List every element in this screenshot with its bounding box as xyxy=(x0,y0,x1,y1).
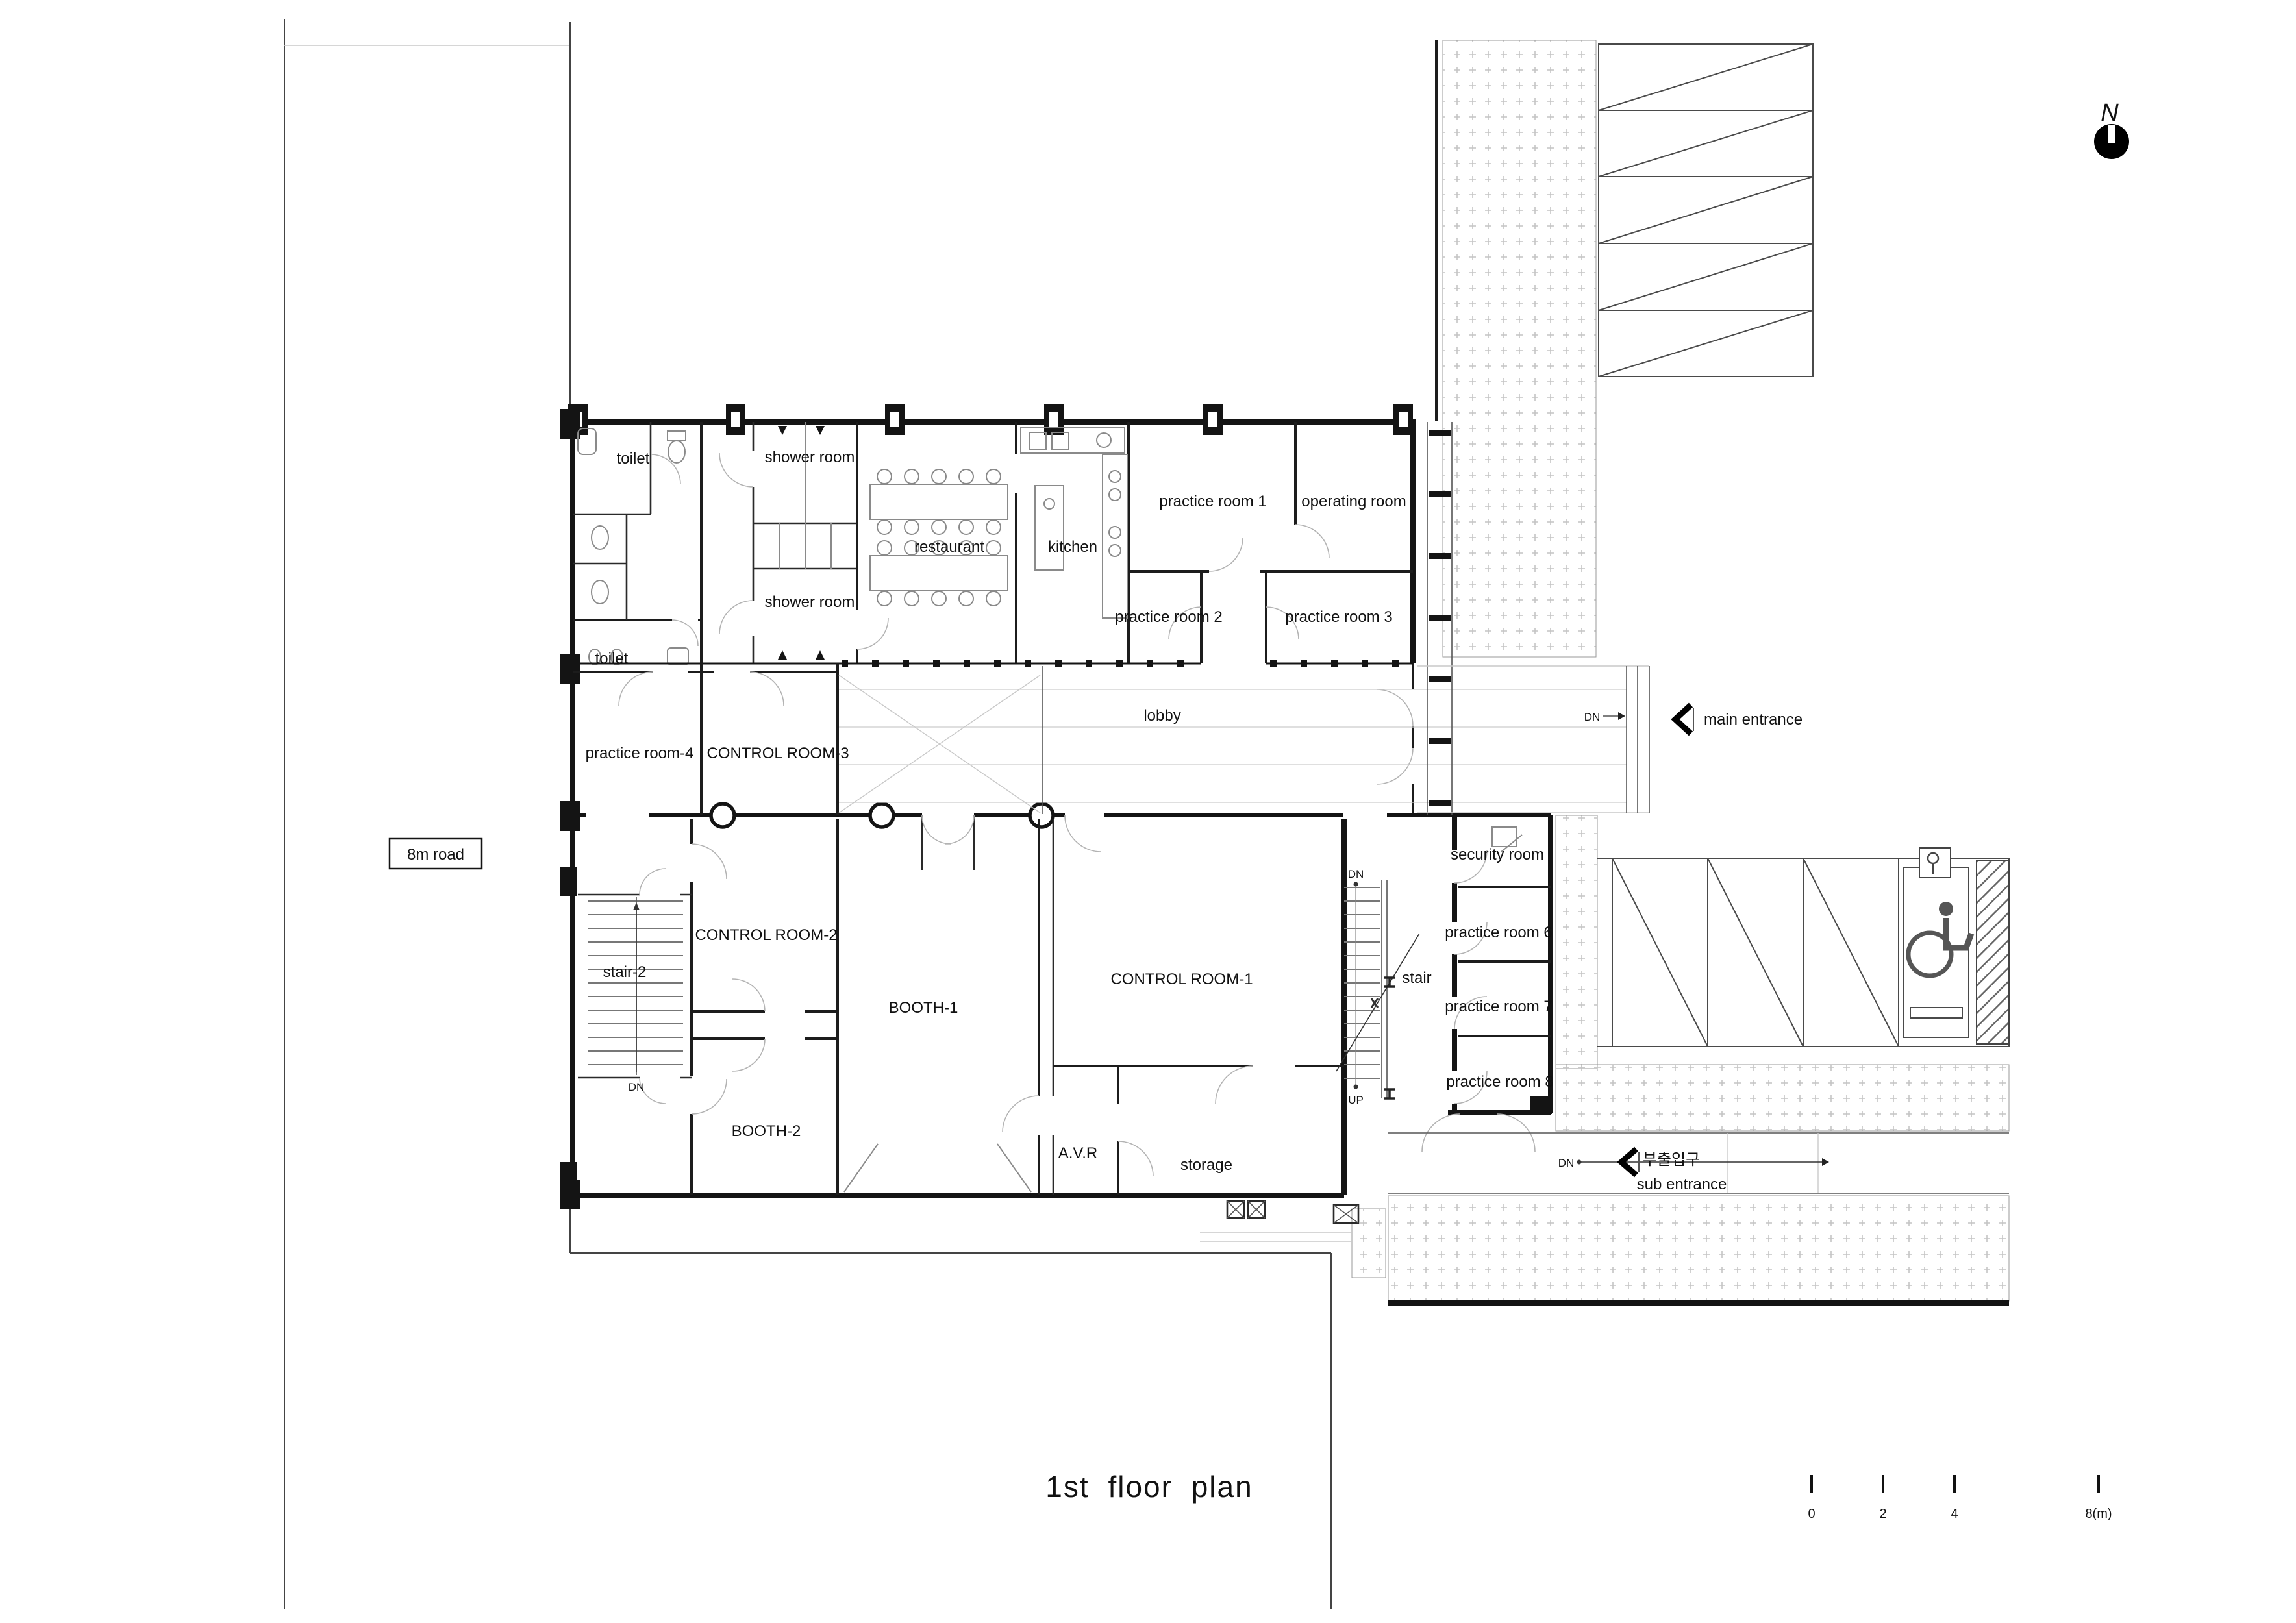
room-labels: toilet shower room restaurant kitchen pr… xyxy=(407,99,2119,1521)
label-security-room: security room xyxy=(1451,846,1544,863)
scale-8m: 8(m) xyxy=(2085,1507,2112,1521)
label-up-stair-main: UP xyxy=(1348,1094,1364,1106)
label-practice-room-4: practice room-4 xyxy=(586,745,694,762)
label-avr: A.V.R xyxy=(1058,1145,1097,1162)
parking-sign-icon xyxy=(1919,848,1951,878)
label-restaurant: restaurant xyxy=(914,538,984,556)
parking-stalls-lower xyxy=(1597,848,2009,1047)
lobby-area xyxy=(839,666,1627,870)
label-booth-2: BOOTH-2 xyxy=(732,1122,801,1140)
equipment-pads xyxy=(1200,1201,1358,1241)
label-dn-sub: DN xyxy=(1558,1157,1575,1169)
label-shower-room-top: shower room xyxy=(765,449,855,466)
label-practice-room-6: practice room 6 xyxy=(1445,924,1552,941)
label-practice-room-2: practice room 2 xyxy=(1115,608,1222,626)
label-dn-main: DN xyxy=(1584,711,1601,723)
floor-plan-canvas: toilet shower room restaurant kitchen pr… xyxy=(0,0,2296,1623)
drawing-title: 1st floor plan xyxy=(1045,1470,1253,1504)
label-kitchen: kitchen xyxy=(1048,538,1097,556)
north-arrow xyxy=(2094,124,2129,159)
north-letter: N xyxy=(2101,99,2119,127)
label-sub-korean: 부출입구 xyxy=(1643,1151,1700,1169)
label-toilet-bottom: toilet xyxy=(595,650,629,667)
label-booth-1: BOOTH-1 xyxy=(889,999,958,1017)
south-block xyxy=(578,815,1551,1241)
label-stair: stair xyxy=(1402,969,1431,987)
label-8m-road: 8m road xyxy=(407,846,464,863)
scale-2: 2 xyxy=(1879,1507,1886,1521)
building-walls xyxy=(560,404,1552,1209)
label-control-room-3: CONTROL ROOM-3 xyxy=(706,745,849,762)
label-toilet-top: toilet xyxy=(617,450,650,467)
label-stair-2: stair-2 xyxy=(603,963,647,981)
scale-bar xyxy=(1812,1475,2099,1493)
label-practice-room-1: practice room 1 xyxy=(1159,493,1266,510)
label-shower-room-bottom: shower room xyxy=(765,593,855,611)
label-practice-room-8: practice room 8 xyxy=(1446,1073,1553,1091)
parking-stalls-upper xyxy=(1599,44,1813,377)
label-main-entrance: main entrance xyxy=(1704,711,1803,728)
label-dn-stair-main: DN xyxy=(1348,868,1364,880)
label-sub-entrance: sub entrance xyxy=(1637,1176,1727,1193)
handicap-stall xyxy=(1904,848,1971,1037)
main-stair xyxy=(1336,880,1419,1098)
label-practice-room-7: practice room 7 xyxy=(1445,998,1552,1015)
label-control-room-1: CONTROL ROOM-1 xyxy=(1110,971,1253,988)
label-operating-room: operating room xyxy=(1301,493,1406,510)
label-storage: storage xyxy=(1180,1156,1232,1174)
scale-0: 0 xyxy=(1808,1507,1815,1521)
label-practice-room-3: practice room 3 xyxy=(1285,608,1392,626)
floor-plan-sheet: toilet shower room restaurant kitchen pr… xyxy=(0,0,2296,1623)
scale-4: 4 xyxy=(1951,1507,1958,1521)
practice-operating-rooms xyxy=(573,422,1413,663)
stair-2-shaft xyxy=(578,819,727,1195)
label-dn-stair2: DN xyxy=(629,1081,645,1093)
label-control-room-2: CONTROL ROOM-2 xyxy=(695,926,837,944)
label-lobby: lobby xyxy=(1143,707,1180,725)
wheelchair-icon xyxy=(1908,902,1971,976)
